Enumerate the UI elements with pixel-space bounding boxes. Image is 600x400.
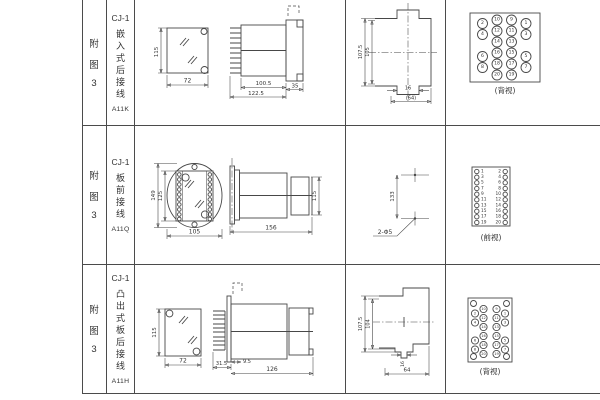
type-char: 接	[116, 348, 125, 360]
table-row-divider-2	[82, 264, 600, 265]
row1-main-drawings-svg: 115 72 100.5 122.5 35	[135, 0, 345, 125]
row2-main-drawings: 149 125 105 115 156	[135, 125, 345, 264]
terminal-number: 1	[481, 168, 484, 174]
type-char: 后	[116, 336, 125, 348]
terminal-number: 12	[494, 28, 500, 34]
terminal-number: 14	[496, 202, 502, 208]
type-char: 前	[116, 184, 125, 196]
row1-front-view: 115 72	[154, 28, 208, 88]
dim-label: 115	[312, 190, 318, 201]
dim-label: 16	[405, 86, 411, 92]
terminal-number: 7	[481, 185, 484, 191]
terminal-number: 4	[498, 174, 501, 180]
terminal-number: 5	[481, 180, 484, 186]
row3-terminal-view: 10 12 14 16 18 20 2 4 6 8 9 11 13 15 17 …	[445, 264, 600, 393]
type-char: 板	[116, 172, 125, 184]
type-char: 嵌	[116, 28, 125, 40]
terminal-number: 12	[481, 316, 486, 320]
dim-label: 100.5	[256, 81, 272, 87]
terminal-number: 7	[525, 64, 528, 70]
terminal-number: 16	[494, 50, 500, 56]
terminal-number: 5	[525, 53, 528, 59]
row2-side-view: 115 156	[230, 158, 322, 235]
terminal-number: 11	[481, 197, 487, 203]
terminal-number: 19	[481, 219, 487, 225]
row1-cutout-profile: 107.5 105 16 (64)	[358, 3, 437, 104]
terminal-number: 9	[481, 191, 484, 197]
dim-label: 72	[184, 78, 192, 85]
row2-drill-plan: 133 2-Φ5	[345, 125, 445, 264]
terminal-number: 2	[498, 168, 501, 174]
terminal-number: 10	[496, 191, 502, 197]
type-label-row2: CJ-1 板 前 接 线 A11Q	[107, 125, 134, 264]
dim-label: 105	[365, 47, 371, 57]
dim-label: 105	[189, 229, 201, 236]
dim-label: 149	[151, 190, 157, 201]
type-label-row3: CJ-1 凸 出 式 板 后 接 线 A11H	[107, 264, 134, 393]
terminal-number: 19	[509, 72, 515, 78]
fig-label-row1: 附 图 3	[82, 0, 106, 125]
terminal-number: 15	[509, 50, 515, 56]
terminal-number: 7	[504, 348, 506, 352]
table-divider-terminal	[445, 0, 446, 393]
terminal-number: 20	[481, 352, 486, 356]
terminal-number: 13	[481, 202, 487, 208]
fig-label-row3: 附 图 3	[82, 264, 106, 393]
table-border-left	[82, 0, 83, 393]
terminal-number: 6	[481, 53, 484, 59]
fig-label-row2: 附 图 3	[82, 125, 106, 264]
terminal-number: 3	[504, 321, 506, 325]
terminal-number: 3	[525, 31, 528, 37]
terminal-number: 16	[481, 334, 486, 338]
table-row-divider-1	[82, 125, 600, 126]
terminal-number: 4	[474, 321, 477, 325]
terminal-number: 18	[481, 343, 486, 347]
view-label: (前视)	[481, 232, 502, 242]
terminal-number: 11	[509, 28, 515, 34]
type-char: 式	[116, 52, 125, 64]
row3-main-drawings: 115 72 31.5 9.5 126	[135, 264, 345, 393]
dim-label: (64)	[406, 96, 416, 102]
terminal-number: 8	[474, 348, 477, 352]
row2-front-view: 149 125 105	[151, 164, 222, 240]
view-label: (背视)	[480, 366, 501, 376]
dim-label: 122.5	[248, 91, 264, 97]
drawing-sheet: 附 图 3 CJ-1 嵌 入 式 后 接 线 A11K 115 72 100.5…	[0, 0, 600, 400]
terminal-number: 17	[509, 61, 515, 67]
type-char: 板	[116, 324, 125, 336]
type-char: 线	[116, 88, 125, 100]
terminal-number: 6	[498, 180, 501, 186]
dim-label: 107.5	[358, 45, 364, 59]
terminal-number: 1	[504, 312, 506, 316]
terminal-number: 3	[481, 174, 484, 180]
type-char: 接	[116, 196, 125, 208]
row3-cutout-profile: 107.5 104 16 64	[358, 288, 435, 376]
terminal-number: 2	[481, 20, 484, 26]
terminal-number: 4	[481, 31, 484, 37]
type-char: 后	[116, 64, 125, 76]
row3-cutout-svg: 107.5 104 16 64	[345, 264, 445, 393]
table-divider-type	[134, 0, 135, 393]
dim-label: 125	[158, 190, 164, 201]
fig-char: 图	[89, 57, 99, 71]
terminal-block-outline	[468, 298, 512, 362]
dim-label: 9.5	[243, 359, 251, 365]
fig-char: 图	[89, 323, 99, 337]
terminal-number: 20	[494, 72, 500, 78]
type-char: 凸	[116, 288, 125, 300]
terminal-number: 6	[474, 339, 477, 343]
terminal-number: 20	[496, 219, 502, 225]
type-char: 接	[116, 76, 125, 88]
dim-label: 115	[152, 327, 158, 338]
fig-char: 附	[89, 168, 99, 182]
terminal-number: 10	[494, 17, 500, 23]
terminal-number: 17	[494, 343, 499, 347]
terminal-number: 11	[494, 316, 499, 320]
type-char: 出	[116, 300, 125, 312]
table-border-bottom	[82, 393, 600, 394]
row1-main-drawings: 115 72 100.5 122.5 35	[135, 0, 345, 125]
dim-label: 133	[390, 191, 396, 202]
row1-cutout-drawing: 107.5 105 16 (64)	[345, 0, 445, 125]
dim-label: 126	[266, 366, 278, 373]
terminal-number: 19	[494, 352, 499, 356]
type-char: 入	[116, 40, 125, 52]
row3-main-drawings-svg: 115 72 31.5 9.5 126	[135, 264, 345, 393]
fig-char: 3	[91, 78, 96, 89]
row2-drill-svg: 133 2-Φ5	[345, 125, 445, 264]
type-label-row1: CJ-1 嵌 入 式 后 接 线 A11K	[107, 0, 134, 125]
type-char: 式	[116, 312, 125, 324]
row3-side-view: 31.5 9.5 126	[213, 283, 313, 376]
row3-terminal-svg: 10 12 14 16 18 20 2 4 6 8 9 11 13 15 17 …	[445, 264, 600, 393]
fig-char: 附	[89, 36, 99, 50]
terminal-number: 10	[481, 307, 486, 311]
terminal-grid: 10 12 14 16 18 20 2 4 6 8 9 11 13 15 17 …	[471, 305, 508, 357]
terminal-number: 17	[481, 214, 487, 220]
table-divider-fig	[106, 0, 107, 393]
row2-terminal-view: 1 3 5 7 9 11 13 15 17 19 2 4 6 8 10 12 1…	[445, 125, 600, 264]
terminal-number: 13	[509, 39, 515, 45]
type-char: 线	[116, 360, 125, 372]
model-name: CJ-1	[112, 13, 130, 23]
terminal-grid: 10 12 14 16 18 20 9 11 13 15 17 19 2 4 6…	[478, 15, 532, 80]
row3-cutout-drawing: 107.5 104 16 64	[345, 264, 445, 393]
row1-terminal-view: 10 12 14 16 18 20 9 11 13 15 17 19 2 4 6…	[445, 0, 600, 125]
dim-label: 31.5	[216, 361, 227, 367]
model-code: A11K	[112, 106, 129, 113]
terminal-number: 8	[481, 64, 484, 70]
model-name: CJ-1	[112, 273, 130, 283]
terminal-number: 2	[474, 312, 476, 316]
terminal-number: 15	[481, 208, 487, 214]
dim-label: 16	[400, 361, 406, 367]
terminal-number: 8	[498, 185, 501, 191]
dim-label: 104	[366, 319, 372, 329]
dim-label: 115	[154, 46, 160, 57]
view-label: (背视)	[495, 85, 516, 95]
terminal-number: 15	[494, 334, 499, 338]
drill-holes: 133 2-Φ5	[373, 168, 429, 236]
terminal-number: 13	[494, 325, 499, 329]
model-code: A11Q	[111, 226, 129, 233]
dim-label: 72	[179, 358, 187, 365]
terminal-number: 5	[504, 339, 506, 343]
fig-char: 图	[89, 189, 99, 203]
terminal-number: 12	[496, 197, 502, 203]
row1-terminal-svg: 10 12 14 16 18 20 9 11 13 15 17 19 2 4 6…	[445, 0, 600, 125]
drill-callout: 2-Φ5	[378, 229, 393, 236]
terminal-number: 18	[496, 214, 502, 220]
row3-front-view: 115 72	[152, 309, 201, 368]
row1-side-view: 100.5 122.5 35	[230, 6, 303, 99]
dim-label: 35	[292, 84, 299, 90]
model-name: CJ-1	[112, 157, 130, 167]
fig-char: 3	[91, 210, 96, 221]
terminal-grid: 1 3 5 7 9 11 13 15 17 19 2 4 6 8 10 12 1…	[475, 168, 508, 225]
terminal-number: 18	[494, 61, 500, 67]
row1-cutout-svg: 107.5 105 16 (64)	[345, 0, 445, 125]
row2-main-drawings-svg: 149 125 105 115 156	[135, 125, 345, 264]
terminal-number: 1	[525, 20, 528, 26]
dim-label: 156	[265, 225, 277, 232]
type-char: 线	[116, 208, 125, 220]
terminal-number: 9	[495, 307, 498, 311]
row2-terminal-svg: 1 3 5 7 9 11 13 15 17 19 2 4 6 8 10 12 1…	[445, 125, 600, 264]
fig-char: 附	[89, 302, 99, 316]
dim-label: 64	[404, 368, 411, 374]
dim-label: 107.5	[358, 317, 364, 331]
table-divider-cutout	[345, 0, 346, 393]
terminal-number: 14	[481, 325, 486, 329]
terminal-number: 14	[494, 39, 500, 45]
fig-char: 3	[91, 344, 96, 355]
model-code: A11H	[112, 378, 130, 385]
terminal-number: 16	[496, 208, 502, 214]
terminal-number: 9	[510, 17, 513, 23]
